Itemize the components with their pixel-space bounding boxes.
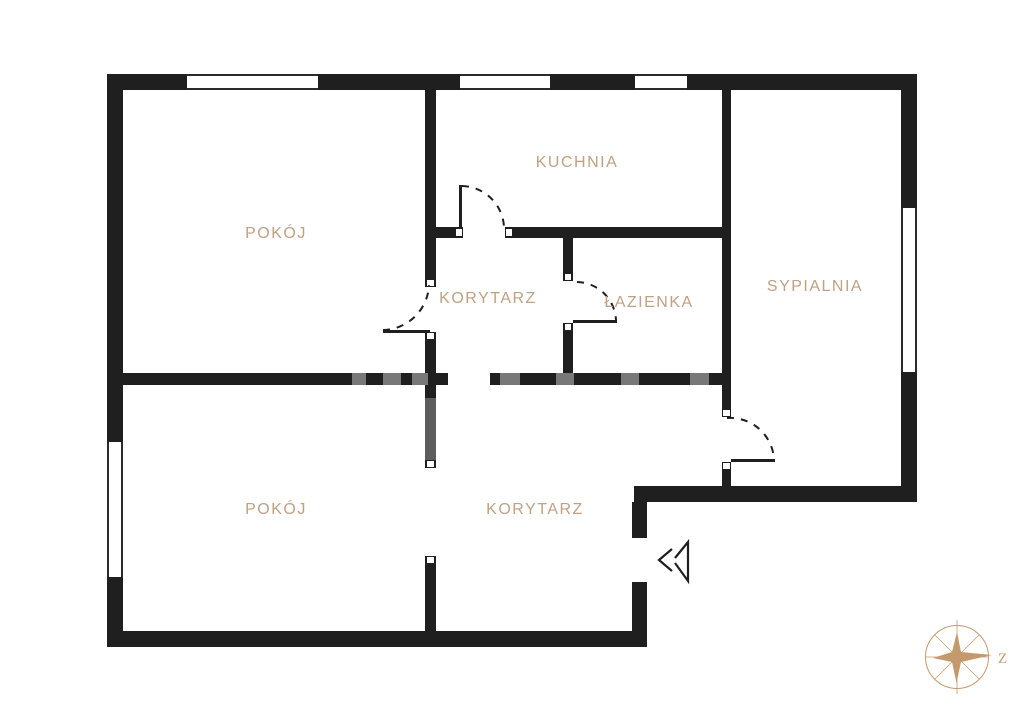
door-arc-sypialnia	[727, 418, 774, 459]
wall-entry-upper	[632, 502, 647, 538]
room-label-korytarz-bottom: KORYTARZ	[486, 501, 584, 519]
jamb-pokoj-door-top	[426, 279, 435, 287]
jamb-lazienka-door-bottom	[564, 323, 572, 331]
window-top-3	[635, 74, 687, 90]
wall-kuchnia-bottom-right	[505, 227, 730, 238]
watermark-fragment	[383, 373, 401, 385]
compass-rose-icon: Z	[925, 620, 1007, 694]
jamb-sypialnia-door-top	[722, 409, 731, 417]
watermark-fragment	[352, 373, 366, 385]
wall-exterior-bottom	[107, 631, 647, 647]
jamb-pokoj2-passage-bottom	[426, 556, 435, 564]
room-label-pokoj-bottom: POKÓJ	[245, 501, 307, 519]
compass-star	[933, 632, 992, 683]
window-right	[901, 208, 917, 372]
watermark-fragment	[556, 373, 574, 385]
entrance-arrow-chevron-icon	[659, 549, 672, 571]
jamb-pokoj-door-bottom	[426, 332, 435, 340]
entrance-arrow-icon	[675, 542, 688, 581]
door-leaf-sypialnia	[731, 459, 775, 462]
watermark-fragment	[621, 373, 639, 385]
plan-symbols-layer: Z	[0, 0, 1024, 724]
room-label-pokoj-top: POKÓJ	[245, 225, 307, 243]
room-label-kuchnia: KUCHNIA	[536, 154, 619, 172]
wall-entry-lower	[632, 582, 647, 631]
jamb-kuchnia-door-left	[455, 228, 463, 237]
wall-pokoj2-right-lower	[425, 556, 436, 631]
jamb-kuchnia-door-right	[505, 228, 513, 237]
jamb-sypialnia-door-bottom	[722, 462, 731, 470]
window-left	[107, 442, 123, 577]
door-leaf-lazienka	[573, 320, 617, 323]
door-arc-pokoj	[383, 285, 429, 330]
watermark-fragment	[690, 373, 709, 385]
jamb-lazienka-door-top	[564, 273, 572, 281]
compass-direction-label: Z	[998, 651, 1007, 667]
room-label-korytarz-top: KORYTARZ	[439, 290, 537, 308]
floor-plan: Z POKÓJ KUCHNIA KORYTARZ ŁAZIENKA SYPIAL…	[0, 0, 1024, 724]
door-leaf-kuchnia	[459, 185, 462, 228]
window-top-2	[460, 74, 550, 90]
door-arc-kuchnia	[462, 186, 504, 228]
watermark-fragment	[412, 373, 428, 385]
watermark-fragment	[425, 398, 436, 460]
wall-sypialnia-left	[722, 90, 731, 417]
watermark-fragment	[500, 373, 520, 385]
wall-sypialnia-bottom	[634, 486, 917, 502]
jamb-pokoj2-passage-top	[426, 460, 435, 468]
window-top-1	[187, 74, 318, 90]
wall-pokoj-kuchnia	[425, 90, 436, 287]
room-label-lazienka: ŁAZIENKA	[604, 294, 693, 312]
door-leaf-pokoj	[383, 330, 430, 333]
room-label-sypialnia: SYPIALNIA	[767, 278, 863, 296]
